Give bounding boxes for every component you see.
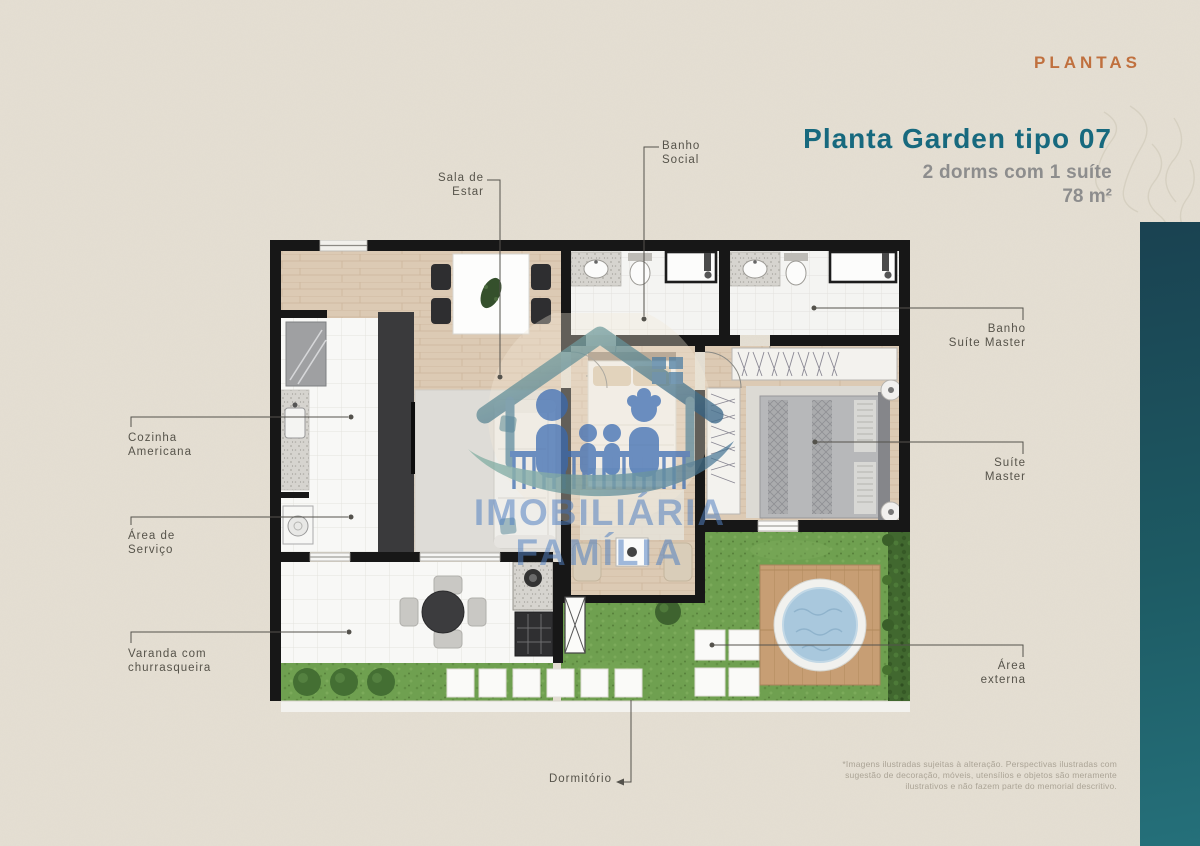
label-varanda-churrasqueira: Varanda comchurrasqueira bbox=[128, 647, 211, 675]
suite-master-furniture bbox=[707, 348, 901, 524]
jacuzzi bbox=[774, 579, 866, 671]
label-suite-master: SuíteMaster bbox=[985, 456, 1026, 484]
plan-area: 78 m² bbox=[803, 186, 1112, 208]
page-title: Planta Garden tipo 07 bbox=[803, 123, 1112, 155]
label-area-externa: Áreaexterna bbox=[981, 659, 1026, 687]
label-dormitorio: Dormitório bbox=[549, 772, 612, 786]
disclaimer-text: *Imagens ilustradas sujeitas à alteração… bbox=[842, 759, 1117, 792]
plan-info-block: Planta Garden tipo 07 2 dorms com 1 suít… bbox=[803, 123, 1112, 208]
section-eyebrow: PLANTAS bbox=[1034, 53, 1141, 73]
dormitorio-furniture bbox=[573, 352, 692, 581]
label-sala-de-estar: Sala deEstar bbox=[438, 171, 484, 199]
label-banho-suite-master: BanhoSuíte Master bbox=[949, 322, 1026, 350]
label-area-de-servico: Área deServiço bbox=[128, 529, 175, 557]
label-banho-social: BanhoSocial bbox=[662, 139, 700, 167]
kitchen-island bbox=[378, 312, 415, 552]
sidewalk-strip bbox=[281, 701, 910, 712]
sofa bbox=[494, 400, 556, 548]
floor-plan bbox=[270, 240, 910, 712]
side-accent-bar bbox=[1140, 222, 1200, 846]
plan-subtitle: 2 dorms com 1 suíte bbox=[803, 162, 1112, 184]
label-cozinha-americana: CozinhaAmericana bbox=[128, 431, 192, 459]
brochure-page: PLANTAS Planta Garden tipo 07 2 dorms co… bbox=[0, 0, 1200, 846]
